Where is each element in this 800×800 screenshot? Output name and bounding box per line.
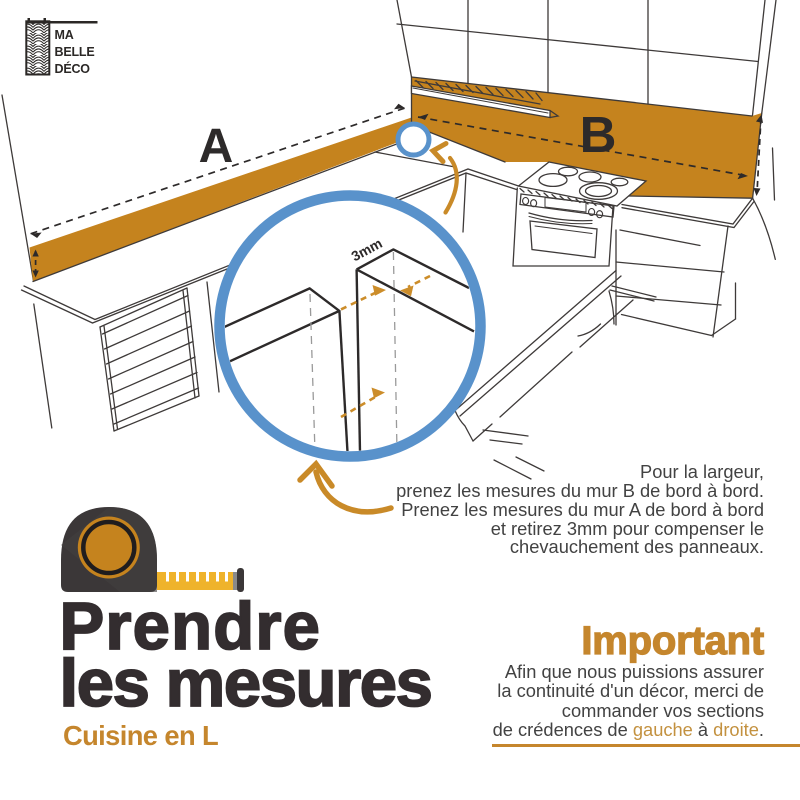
svg-text:B: B xyxy=(580,106,617,163)
svg-text:A: A xyxy=(199,120,234,173)
